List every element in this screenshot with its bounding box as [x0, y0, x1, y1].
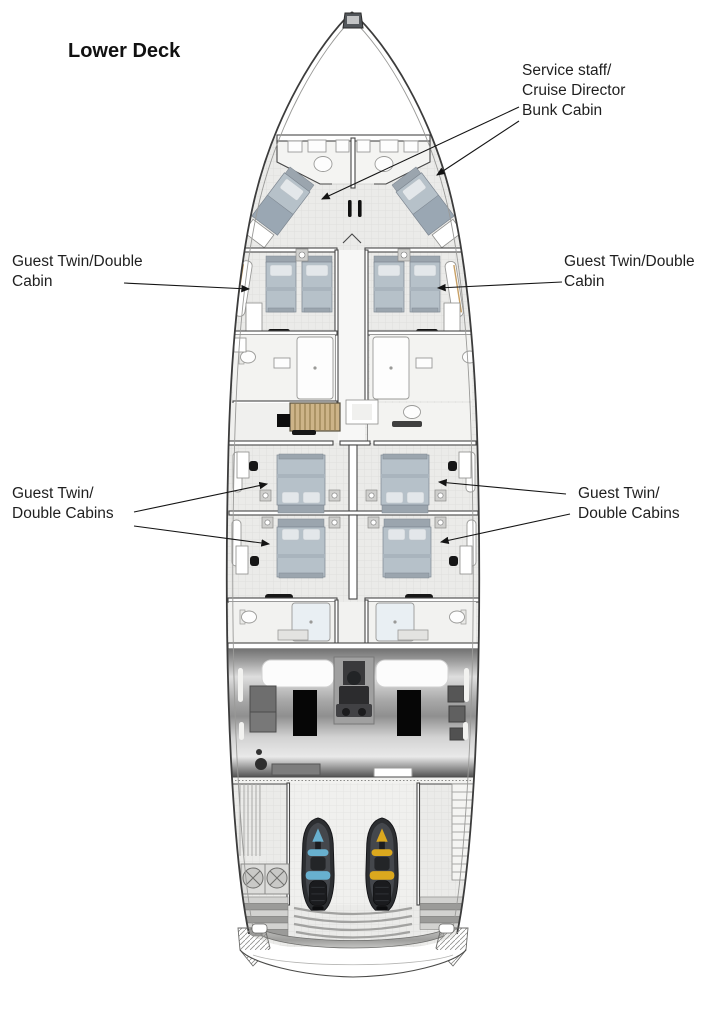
twin-bed-icon [266, 256, 296, 312]
interior [220, 135, 490, 947]
chair-icon [249, 461, 258, 471]
winch-icon [241, 864, 289, 894]
toilet-icon [314, 157, 332, 172]
label-line: Guest Twin/ [578, 484, 680, 504]
wardrobe [246, 303, 262, 335]
double-bed-icon [383, 519, 431, 578]
chair-icon [448, 461, 457, 471]
chair-icon [449, 556, 458, 566]
toilet-icon [375, 157, 393, 172]
center-divider-wall [351, 138, 355, 188]
desk [236, 546, 248, 574]
jetski-handlebar [372, 849, 393, 856]
jet-ski-blue [302, 818, 334, 910]
bow-anchor-locker [343, 13, 363, 28]
label-line: Guest Twin/Double [12, 252, 143, 272]
door-handle-icon [348, 200, 352, 217]
annotation-arrow-icon [124, 283, 249, 289]
lower-deck-plan: Lower Deck Service staff/ Cruise Directo… [0, 0, 709, 1019]
label-guest-twins-mid-right: Guest Twin/ Double Cabins [578, 484, 680, 524]
toilet-icon [450, 610, 467, 624]
label-line: Cabin [564, 272, 695, 292]
door-handle-icon [358, 200, 362, 217]
jetski-mid-accent [370, 871, 395, 880]
sink-icon [398, 630, 428, 640]
sink-icon [274, 358, 290, 368]
engine-block-icon [293, 690, 317, 736]
muffler-tank [376, 660, 448, 687]
double-bed-icon [277, 454, 325, 513]
equipment-box [277, 414, 290, 427]
aft-bathrooms [229, 600, 476, 645]
workbench [272, 764, 320, 775]
sink-icon [288, 141, 302, 152]
vanity-counter [392, 421, 422, 427]
generator-engine-icon [334, 657, 374, 724]
sink-icon [404, 141, 418, 152]
page-title: Lower Deck [68, 40, 180, 63]
label-guest-twin-right: Guest Twin/Double Cabin [564, 252, 695, 292]
desk [460, 546, 472, 574]
platform-edge [240, 950, 466, 977]
double-bed-icon [381, 454, 429, 513]
label-line: Bunk Cabin [522, 101, 625, 121]
twin-bed-icon [302, 256, 332, 312]
sink-icon [278, 630, 308, 640]
label-line: Service staff/ [522, 61, 625, 81]
twin-bed-icon [410, 256, 440, 312]
bathroom-mid-left [233, 335, 337, 405]
cabinet [308, 140, 326, 152]
twin-bed-icon [374, 256, 404, 312]
desk [237, 452, 249, 478]
toilet-icon [240, 610, 257, 624]
double-bed-icon [277, 519, 325, 578]
bathroom-mid-right [368, 335, 479, 443]
label-line: Double Cabins [12, 504, 114, 524]
jetski-handlebar [308, 849, 329, 856]
wardrobe [444, 303, 460, 335]
label-line: Cruise Director [522, 81, 625, 101]
annotation-arrow-icon [437, 121, 519, 175]
label-line: Guest Twin/ [12, 484, 114, 504]
label-line: Cabin [12, 272, 143, 292]
muffler-tank [262, 660, 334, 687]
sink-icon [416, 358, 432, 368]
side-locker-right [452, 784, 478, 880]
label-guest-twins-mid-left: Guest Twin/ Double Cabins [12, 484, 114, 524]
jet-ski-yellow [366, 818, 398, 910]
engine-room [227, 643, 481, 779]
toilet-icon [404, 406, 421, 419]
engine-block-icon [397, 690, 421, 736]
label-line: Guest Twin/Double [564, 252, 695, 272]
desk [459, 452, 471, 478]
label-line: Double Cabins [578, 504, 680, 524]
jetski-mid-accent [306, 871, 331, 880]
toilet-icon [463, 350, 480, 364]
equipment-cabinet [250, 686, 276, 712]
chair-icon [250, 556, 259, 566]
label-bunk-cabin: Service staff/ Cruise Director Bunk Cabi… [522, 61, 625, 121]
label-guest-twin-left: Guest Twin/Double Cabin [12, 252, 143, 292]
